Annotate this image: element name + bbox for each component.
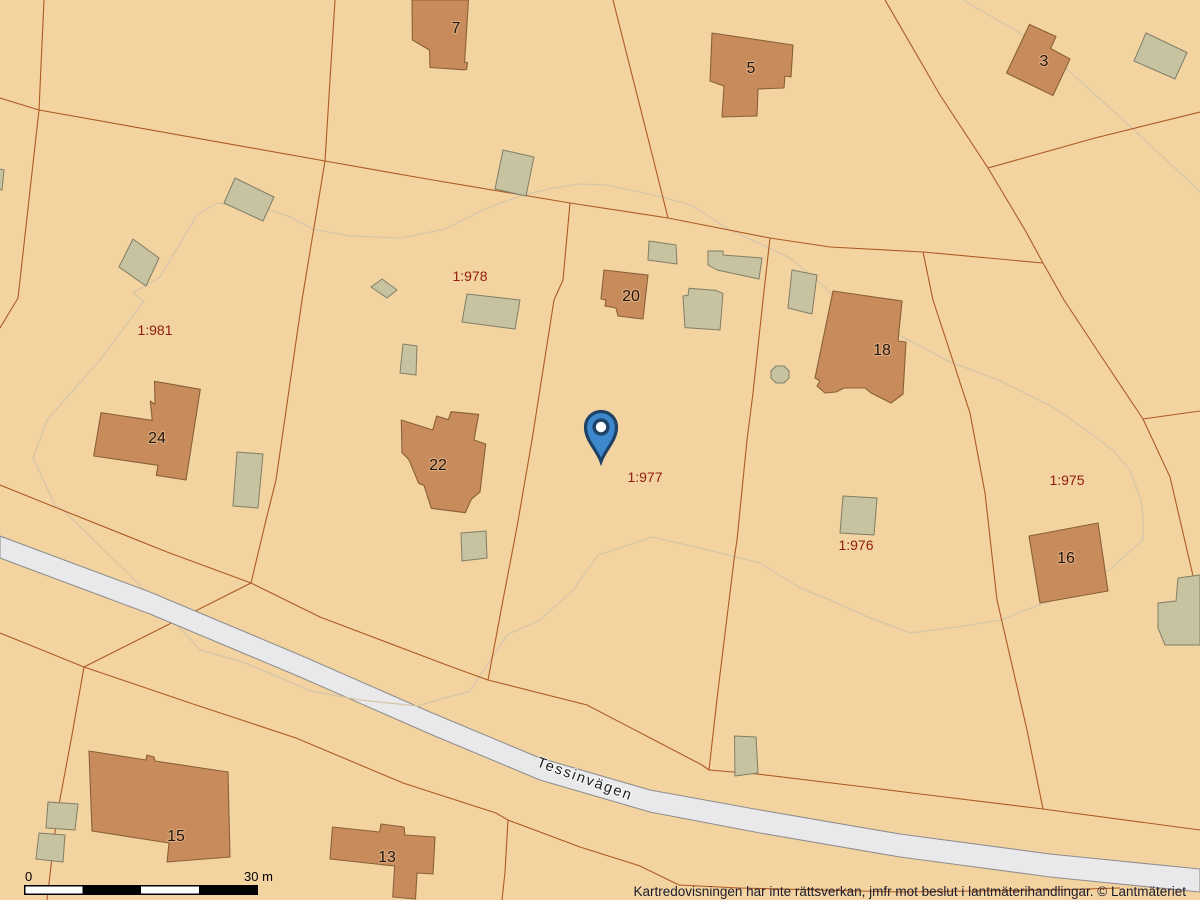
svg-text:16: 16: [1057, 550, 1075, 567]
svg-text:0: 0: [25, 869, 32, 884]
svg-text:1:981: 1:981: [137, 322, 172, 338]
svg-text:18: 18: [873, 342, 891, 359]
svg-text:24: 24: [148, 430, 166, 447]
svg-text:13: 13: [378, 849, 396, 866]
svg-text:1:976: 1:976: [838, 537, 873, 553]
svg-text:15: 15: [167, 828, 185, 845]
svg-text:Kartredovisningen har inte rät: Kartredovisningen har inte rättsverkan, …: [634, 884, 1187, 899]
svg-text:30 m: 30 m: [244, 869, 273, 884]
svg-text:5: 5: [747, 60, 756, 77]
svg-text:22: 22: [429, 457, 447, 474]
svg-text:1:977: 1:977: [627, 469, 662, 485]
svg-text:3: 3: [1040, 53, 1049, 70]
svg-text:1:975: 1:975: [1049, 472, 1084, 488]
svg-text:1:978: 1:978: [452, 268, 487, 284]
svg-text:7: 7: [452, 20, 461, 37]
svg-text:20: 20: [622, 288, 640, 305]
